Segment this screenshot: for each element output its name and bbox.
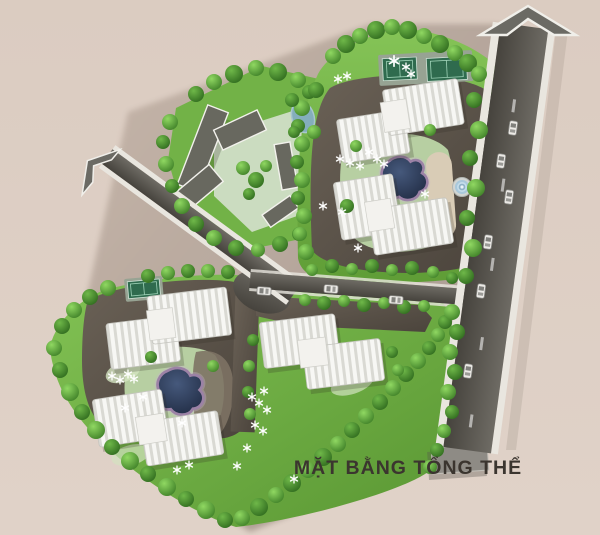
car xyxy=(483,235,493,250)
plan-title: MẶT BẰNG TỔNG THỂ xyxy=(294,455,522,479)
car xyxy=(496,154,506,169)
car xyxy=(476,284,486,299)
car xyxy=(389,296,404,305)
car xyxy=(324,285,339,294)
car xyxy=(504,190,514,205)
site-plan-page: MẶT BẰNG TỔNG THỂ xyxy=(0,0,600,535)
car xyxy=(257,287,272,296)
car xyxy=(463,364,473,379)
site-plan-image: MẶT BẰNG TỔNG THỂ xyxy=(0,0,600,535)
car xyxy=(508,121,518,136)
